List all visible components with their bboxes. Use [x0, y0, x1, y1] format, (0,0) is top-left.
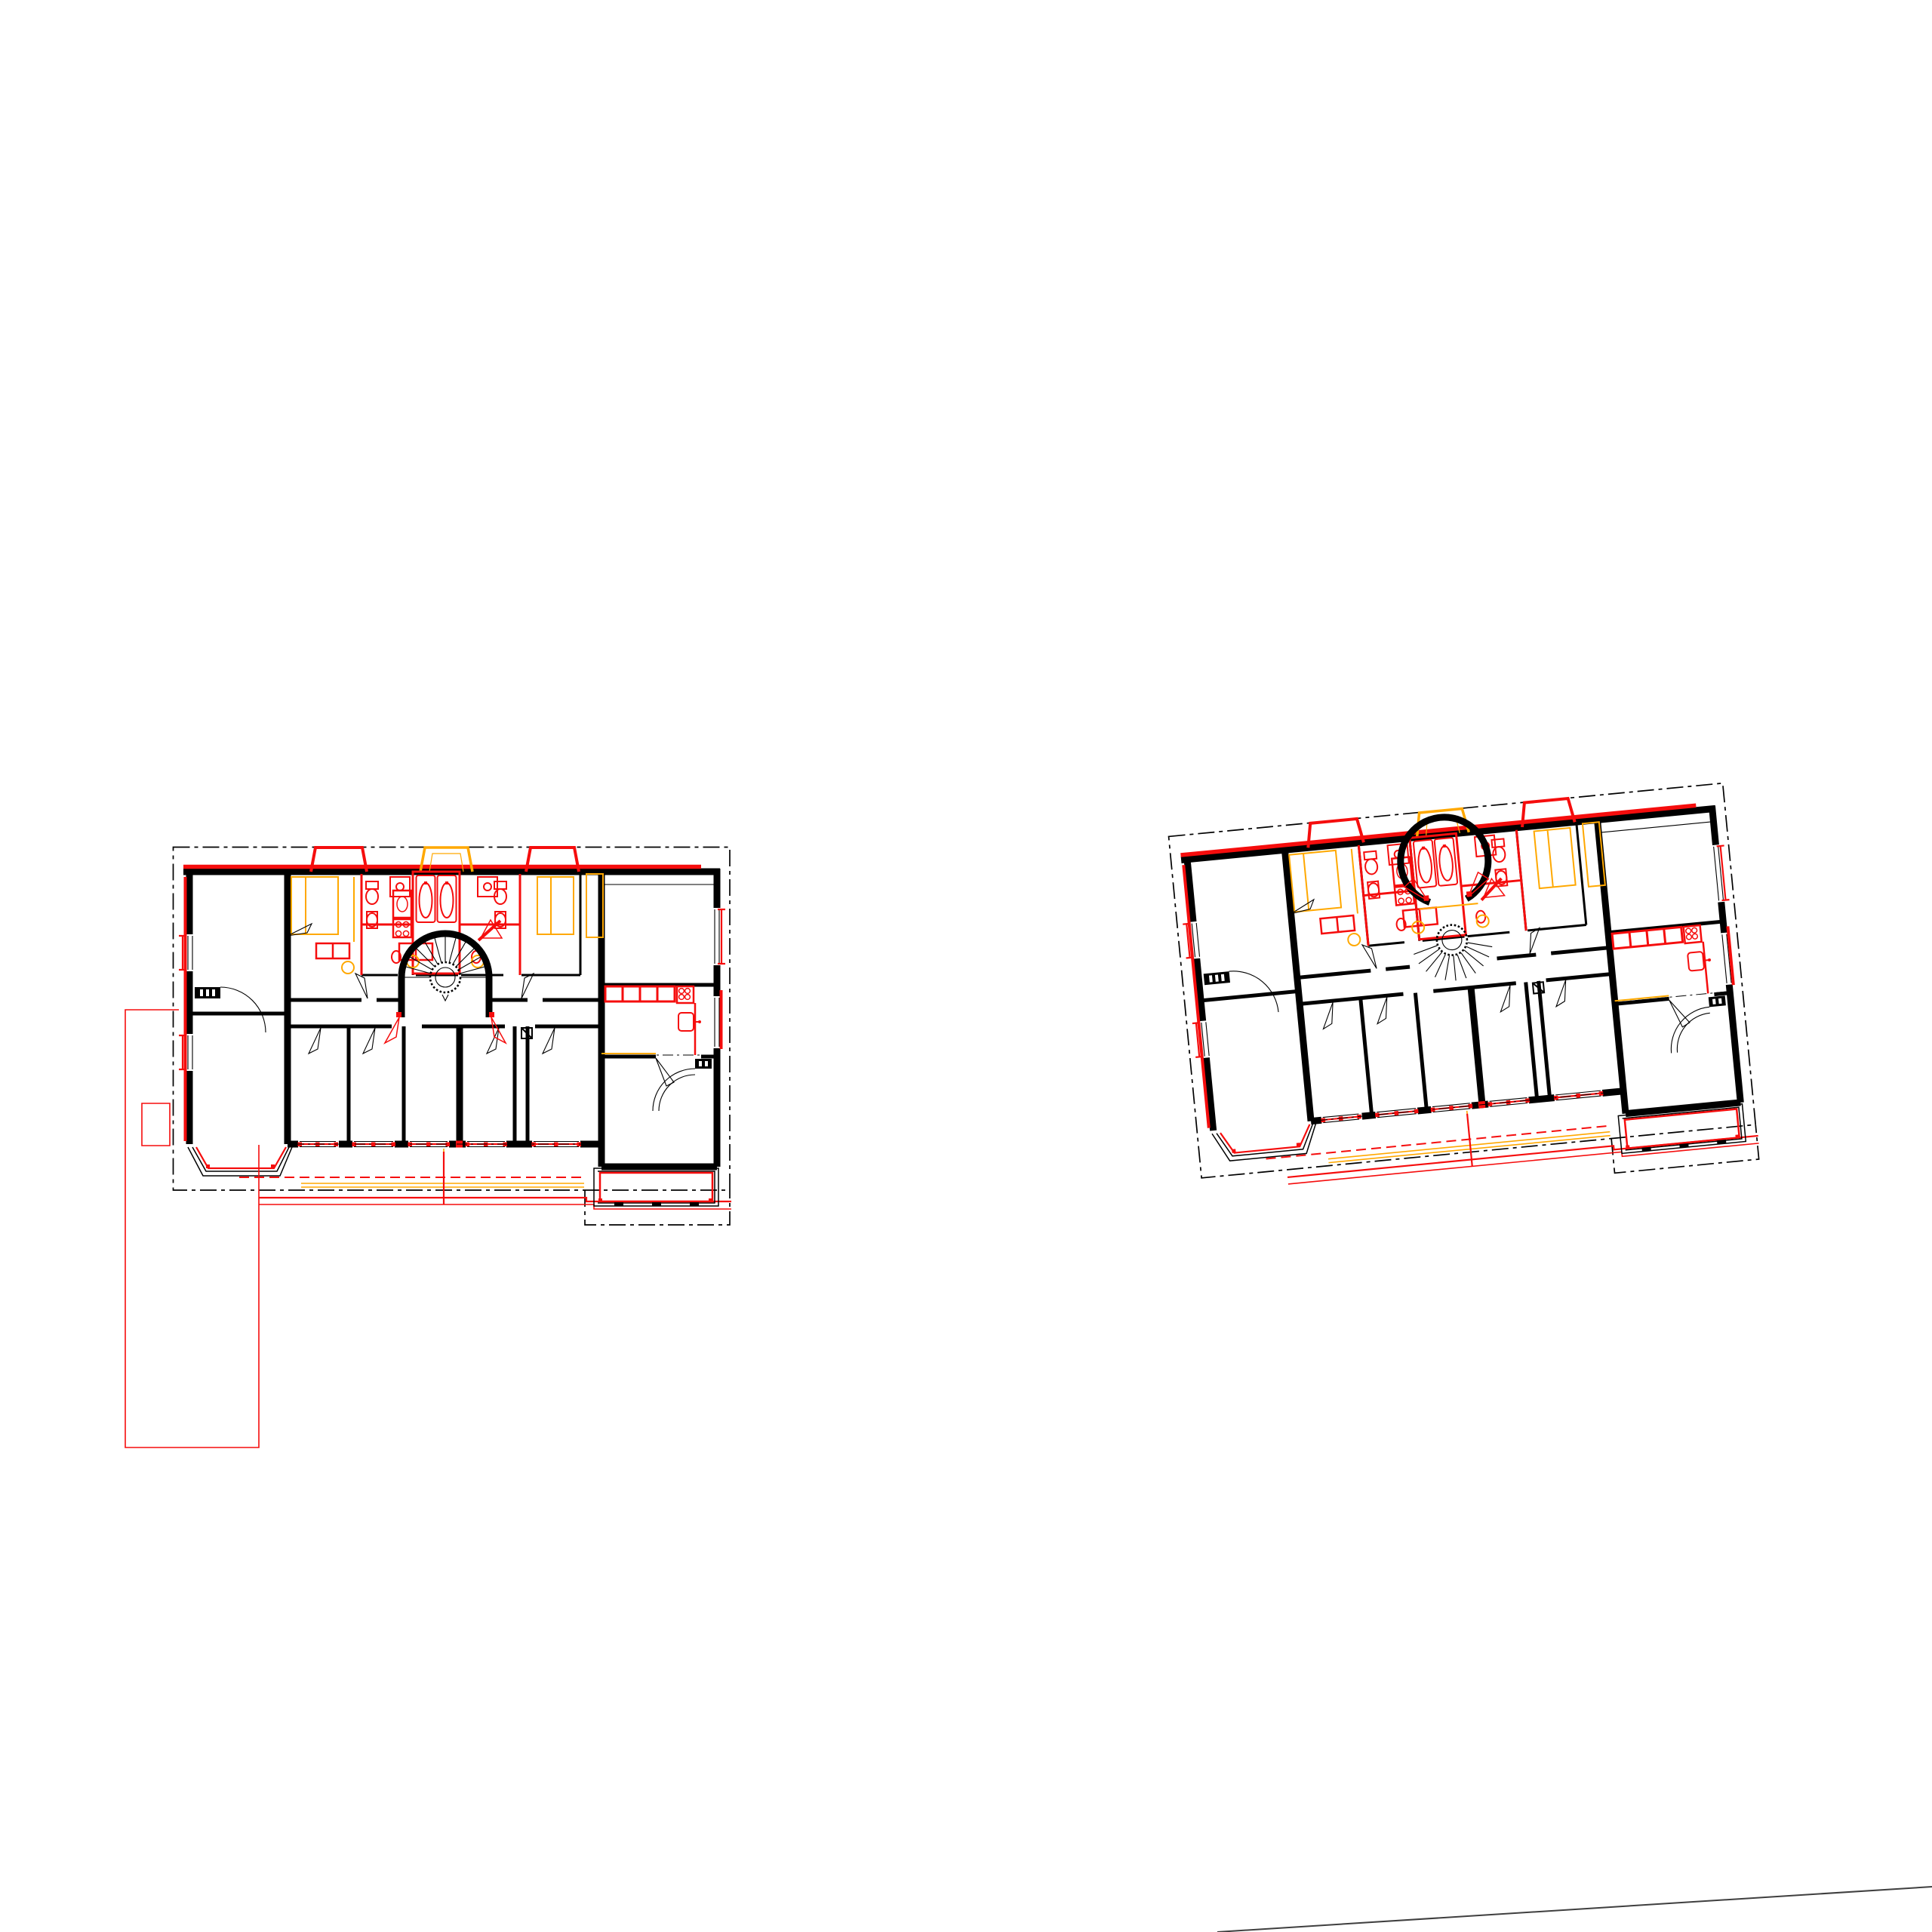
terrace-outline-small-rect	[142, 1103, 170, 1146]
floor-plan-drawing	[0, 0, 1932, 1932]
floor-plan-right	[1169, 783, 1761, 1213]
drawing-canvas	[0, 0, 1932, 1932]
floor-plan-left	[174, 848, 732, 1226]
site-boundary-line	[1217, 1887, 1932, 1932]
